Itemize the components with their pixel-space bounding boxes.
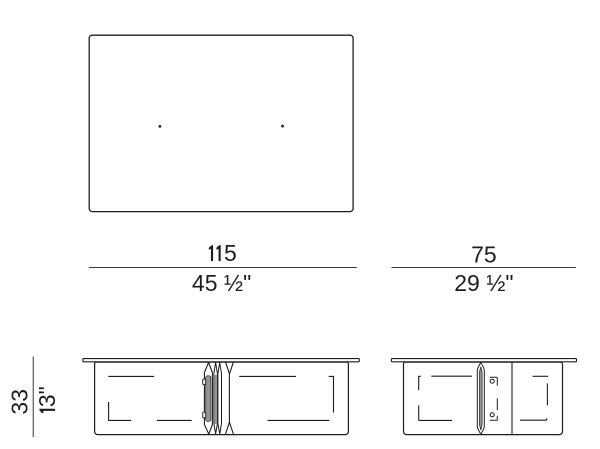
svg-text:75: 75: [471, 241, 497, 267]
svg-text:33: 33: [7, 389, 33, 415]
svg-text:45 ½": 45 ½": [192, 270, 251, 296]
svg-text:5: 5: [224, 240, 237, 266]
svg-text:3": 3": [34, 386, 60, 407]
svg-text:29 ½": 29 ½": [454, 270, 513, 296]
